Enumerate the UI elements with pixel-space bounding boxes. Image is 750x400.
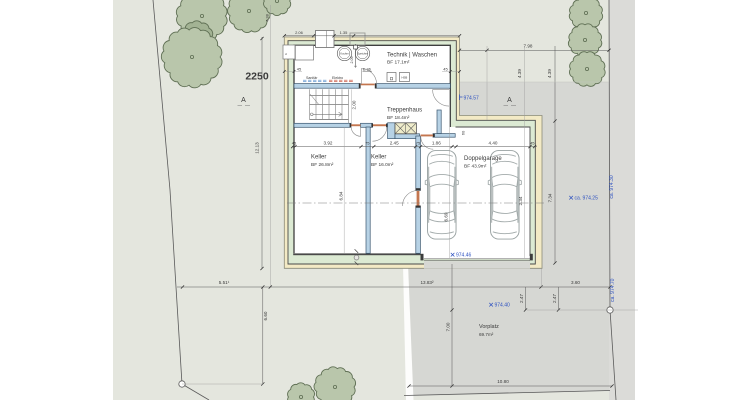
- svg-text:ca. 974.25: ca. 974.25: [575, 196, 599, 202]
- svg-text:6.69: 6.69: [444, 212, 449, 221]
- svg-text:BF 26.8m²: BF 26.8m²: [311, 162, 334, 168]
- svg-text:4.39: 4.39: [547, 69, 552, 78]
- svg-text:ca. 974.30: ca. 974.30: [609, 175, 615, 199]
- svg-text:Kocher: Kocher: [340, 52, 348, 56]
- svg-text:3.60: 3.60: [571, 280, 580, 285]
- svg-text:75: 75: [416, 141, 421, 146]
- svg-text:7.34: 7.34: [548, 193, 553, 202]
- svg-text:45: 45: [297, 66, 302, 71]
- svg-text:974.57: 974.57: [464, 96, 480, 102]
- svg-text:Vorplatz: Vorplatz: [479, 324, 499, 330]
- svg-text:2250: 2250: [245, 71, 269, 83]
- svg-text:12.13: 12.13: [254, 142, 259, 154]
- svg-text:1.86: 1.86: [432, 141, 441, 146]
- svg-text:HSB: HSB: [402, 75, 408, 79]
- svg-text:Keller: Keller: [371, 155, 386, 161]
- svg-text:2.47: 2.47: [552, 294, 557, 303]
- svg-text:974.40: 974.40: [495, 303, 511, 309]
- svg-text:BF 18.4m²: BF 18.4m²: [387, 115, 410, 121]
- svg-text:Speicher: Speicher: [357, 52, 367, 56]
- svg-text:ca. 974.70: ca. 974.70: [610, 278, 616, 302]
- svg-text:A: A: [507, 97, 512, 104]
- svg-text:2.00: 2.00: [351, 100, 356, 109]
- svg-text:6.84: 6.84: [338, 191, 343, 200]
- svg-text:4.40: 4.40: [489, 141, 498, 146]
- svg-text:1.35: 1.35: [340, 30, 349, 35]
- svg-text:4.39: 4.39: [517, 69, 522, 78]
- svg-text:Treppenhaus: Treppenhaus: [387, 108, 422, 114]
- svg-text:75: 75: [365, 141, 370, 146]
- svg-text:Elektro: Elektro: [332, 76, 343, 80]
- svg-text:2.47: 2.47: [519, 294, 524, 303]
- svg-text:Sanitär: Sanitär: [306, 76, 318, 80]
- svg-text:BF 16.0m²: BF 16.0m²: [371, 162, 394, 168]
- svg-text:45: 45: [530, 141, 535, 146]
- svg-text:E 96: E 96: [363, 67, 371, 71]
- svg-text:60: 60: [461, 130, 466, 135]
- svg-text:5.51¹: 5.51¹: [219, 280, 230, 285]
- svg-text:7.98: 7.98: [524, 44, 533, 49]
- svg-text:Keller: Keller: [311, 155, 326, 161]
- svg-text:45: 45: [292, 141, 297, 146]
- svg-text:2.34: 2.34: [518, 196, 523, 205]
- svg-text:4.38: 4.38: [264, 13, 269, 22]
- svg-text:13.83²: 13.83²: [420, 280, 433, 285]
- svg-text:2.09: 2.09: [350, 57, 354, 64]
- svg-text:BF 43.9m²: BF 43.9m²: [464, 164, 487, 170]
- svg-text:10.80: 10.80: [497, 379, 509, 384]
- svg-text:2.45: 2.45: [390, 141, 399, 146]
- svg-text:3.92: 3.92: [324, 141, 333, 146]
- svg-text:974.46: 974.46: [456, 253, 472, 259]
- svg-text:2.06: 2.06: [295, 30, 304, 35]
- svg-text:Technik | Waschen: Technik | Waschen: [387, 53, 437, 59]
- svg-text:BF 17.1m²: BF 17.1m²: [387, 60, 410, 66]
- svg-text:45: 45: [443, 66, 448, 71]
- svg-text:A: A: [241, 97, 246, 104]
- svg-text:69.7m²: 69.7m²: [479, 332, 494, 337]
- svg-text:7.00: 7.00: [445, 322, 450, 331]
- svg-text:6.60: 6.60: [263, 311, 268, 320]
- svg-text:Doppelgarage: Doppelgarage: [464, 156, 502, 162]
